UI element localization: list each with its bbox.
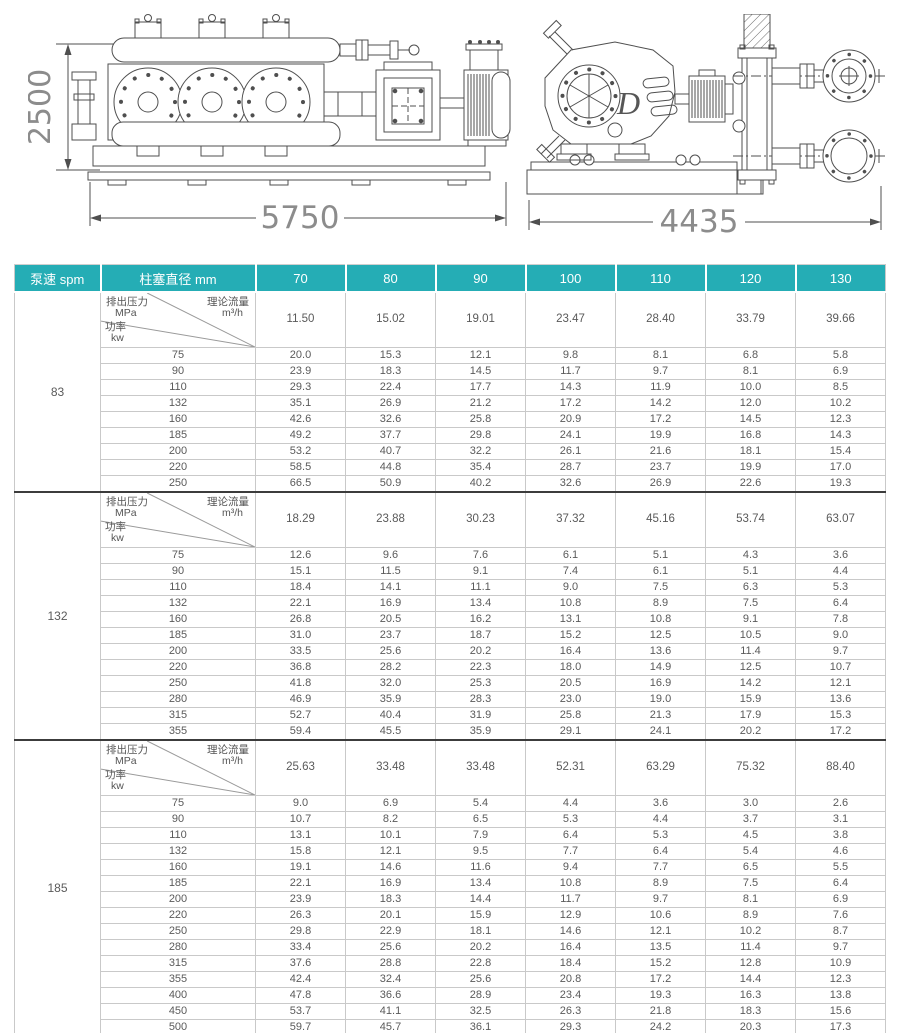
power-value: 17.2 [616, 412, 706, 428]
power-value: 32.6 [346, 412, 436, 428]
table-row: 35559.445.535.929.124.120.217.2 [15, 724, 886, 741]
power-value: 13.6 [796, 692, 886, 708]
power-value: 18.3 [346, 364, 436, 380]
power-value: 45.7 [346, 1020, 436, 1033]
power-value: 10.2 [796, 396, 886, 412]
theoretical-flow-value: 63.07 [796, 492, 886, 548]
discharge-pressure-value: 250 [101, 476, 256, 493]
power-value: 15.3 [796, 708, 886, 724]
table-row: 28033.425.620.216.413.511.49.7 [15, 940, 886, 956]
power-value: 19.1 [256, 860, 346, 876]
power-value: 40.2 [436, 476, 526, 493]
power-value: 10.8 [526, 596, 616, 612]
power-value: 11.4 [706, 940, 796, 956]
corner-legend-cell: 排出压力MPa理论流量m³/h功率kw [101, 740, 256, 796]
table-row: 50059.745.736.129.324.220.317.3 [15, 1020, 886, 1033]
power-value: 10.7 [796, 660, 886, 676]
power-value: 33.5 [256, 644, 346, 660]
power-value: 24.1 [616, 724, 706, 741]
spec-table-body: 83排出压力MPa理论流量m³/h功率kw11.5015.0219.0123.4… [15, 292, 886, 1033]
power-value: 28.3 [436, 692, 526, 708]
discharge-pressure-value: 200 [101, 444, 256, 460]
discharge-pressure-value: 75 [101, 796, 256, 812]
power-value: 9.6 [346, 548, 436, 564]
discharge-pressure-value: 185 [101, 428, 256, 444]
table-row: 11013.110.17.96.45.34.53.8 [15, 828, 886, 844]
table-row: 13215.812.19.57.76.45.44.6 [15, 844, 886, 860]
power-value: 7.6 [796, 908, 886, 924]
power-value: 9.7 [616, 892, 706, 908]
power-value: 8.5 [796, 380, 886, 396]
power-value: 7.6 [436, 548, 526, 564]
power-value: 4.3 [706, 548, 796, 564]
power-value: 18.7 [436, 628, 526, 644]
pressure-label: 排出压力 [106, 745, 148, 756]
power-value: 31.0 [256, 628, 346, 644]
power-value: 12.9 [526, 908, 616, 924]
pump-speed-value: 132 [15, 492, 101, 740]
power-value: 37.6 [256, 956, 346, 972]
power-value: 25.6 [346, 940, 436, 956]
power-value: 11.9 [616, 380, 706, 396]
power-label: 功率 [105, 522, 126, 533]
power-value: 6.9 [796, 364, 886, 380]
power-value: 6.9 [346, 796, 436, 812]
power-value: 4.4 [616, 812, 706, 828]
power-value: 5.8 [796, 348, 886, 364]
power-value: 29.3 [526, 1020, 616, 1033]
header-plunger-diameter: 柱塞直径 mm [101, 265, 256, 293]
theoretical-flow-value: 33.79 [706, 292, 796, 348]
power-value: 28.2 [346, 660, 436, 676]
power-value: 33.4 [256, 940, 346, 956]
power-value: 46.9 [256, 692, 346, 708]
power-value: 16.4 [526, 940, 616, 956]
power-value: 21.8 [616, 1004, 706, 1020]
power-value: 13.5 [616, 940, 706, 956]
table-row: 9023.918.314.511.79.78.16.9 [15, 364, 886, 380]
power-value: 26.3 [256, 908, 346, 924]
power-value: 20.1 [346, 908, 436, 924]
discharge-pressure-value: 160 [101, 860, 256, 876]
base-frame [527, 155, 763, 194]
flow-unit: m³/h [222, 508, 243, 519]
power-value: 40.4 [346, 708, 436, 724]
power-unit: kw [111, 533, 124, 544]
power-value: 20.3 [706, 1020, 796, 1033]
power-value: 36.1 [436, 1020, 526, 1033]
power-value: 20.2 [706, 724, 796, 741]
flow-unit: m³/h [222, 308, 243, 319]
power-value: 50.9 [346, 476, 436, 493]
fluid-end [108, 38, 419, 156]
power-value: 16.2 [436, 612, 526, 628]
power-value: 12.1 [616, 924, 706, 940]
power-value: 14.4 [436, 892, 526, 908]
power-value: 45.5 [346, 724, 436, 741]
power-value: 3.6 [796, 548, 886, 564]
table-row: 9015.111.59.17.46.15.14.4 [15, 564, 886, 580]
power-value: 32.6 [526, 476, 616, 493]
power-value: 36.8 [256, 660, 346, 676]
power-value: 23.0 [526, 692, 616, 708]
power-value: 9.8 [526, 348, 616, 364]
corner-legend-cell: 排出压力MPa理论流量m³/h功率kw [101, 492, 256, 548]
power-value: 12.8 [706, 956, 796, 972]
theoretical-flow-value: 23.47 [526, 292, 616, 348]
table-row: 22026.320.115.912.910.68.97.6 [15, 908, 886, 924]
valve-stacks [135, 15, 289, 39]
theoretical-flow-value: 25.63 [256, 740, 346, 796]
power-value: 9.7 [796, 940, 886, 956]
power-value: 35.9 [436, 724, 526, 741]
power-value: 29.3 [256, 380, 346, 396]
power-value: 59.7 [256, 1020, 346, 1033]
theoretical-flow-value: 19.01 [436, 292, 526, 348]
discharge-pressure-value: 315 [101, 708, 256, 724]
power-value: 22.9 [346, 924, 436, 940]
discharge-pressure-value: 250 [101, 924, 256, 940]
table-row: 9010.78.26.55.34.43.73.1 [15, 812, 886, 828]
power-unit: kw [111, 333, 124, 344]
power-value: 15.9 [706, 692, 796, 708]
pressure-unit: MPa [115, 756, 137, 767]
theoretical-flow-value: 33.48 [346, 740, 436, 796]
power-value: 19.3 [616, 988, 706, 1004]
power-value: 12.3 [796, 972, 886, 988]
power-value: 26.9 [346, 396, 436, 412]
dimension-5750: 5750 [261, 200, 340, 236]
table-row: 31537.628.822.818.415.212.810.9 [15, 956, 886, 972]
power-value: 6.1 [616, 564, 706, 580]
power-value: 44.8 [346, 460, 436, 476]
table-row: 7520.015.312.19.88.16.85.8 [15, 348, 886, 364]
power-value: 15.2 [616, 956, 706, 972]
power-value: 19.9 [616, 428, 706, 444]
header-pump-speed: 泵速 spm [15, 265, 101, 293]
power-value: 15.2 [526, 628, 616, 644]
theoretical-flow-value: 75.32 [706, 740, 796, 796]
power-value: 14.5 [706, 412, 796, 428]
power-value: 9.7 [796, 644, 886, 660]
power-value: 13.6 [616, 644, 706, 660]
power-value: 17.3 [796, 1020, 886, 1033]
power-value: 18.4 [526, 956, 616, 972]
power-value: 29.8 [436, 428, 526, 444]
power-value: 8.1 [706, 364, 796, 380]
power-value: 13.4 [436, 596, 526, 612]
power-value: 53.2 [256, 444, 346, 460]
discharge-pressure-value: 110 [101, 828, 256, 844]
power-value: 14.4 [706, 972, 796, 988]
power-value: 5.4 [706, 844, 796, 860]
power-value: 29.1 [526, 724, 616, 741]
discharge-pressure-value: 280 [101, 692, 256, 708]
section-row-83: 83排出压力MPa理论流量m³/h功率kw11.5015.0219.0123.4… [15, 292, 886, 348]
power-value: 6.4 [526, 828, 616, 844]
power-value: 9.0 [796, 628, 886, 644]
power-value: 22.1 [256, 876, 346, 892]
power-value: 8.9 [616, 596, 706, 612]
power-value: 10.8 [526, 876, 616, 892]
power-value: 10.6 [616, 908, 706, 924]
power-value: 36.6 [346, 988, 436, 1004]
power-value: 47.8 [256, 988, 346, 1004]
power-value: 26.3 [526, 1004, 616, 1020]
power-value: 16.9 [346, 596, 436, 612]
power-value: 42.4 [256, 972, 346, 988]
power-value: 6.9 [796, 892, 886, 908]
discharge-pressure-value: 220 [101, 660, 256, 676]
power-value: 32.2 [436, 444, 526, 460]
theoretical-flow-value: 52.31 [526, 740, 616, 796]
power-value: 18.4 [256, 580, 346, 596]
power-value: 53.7 [256, 1004, 346, 1020]
power-value: 20.9 [526, 412, 616, 428]
power-value: 3.8 [796, 828, 886, 844]
power-value: 7.5 [706, 596, 796, 612]
table-row: 11018.414.111.19.07.56.35.3 [15, 580, 886, 596]
power-value: 41.1 [346, 1004, 436, 1020]
power-value: 31.9 [436, 708, 526, 724]
corner-legend-cell: 排出压力MPa理论流量m³/h功率kw [101, 292, 256, 348]
discharge-pressure-value: 132 [101, 844, 256, 860]
theoretical-flow-value: 18.29 [256, 492, 346, 548]
power-value: 24.1 [526, 428, 616, 444]
power-value: 16.4 [526, 644, 616, 660]
power-value: 18.0 [526, 660, 616, 676]
pressure-label: 排出压力 [106, 497, 148, 508]
gearbox [376, 62, 464, 140]
power-value: 15.4 [796, 444, 886, 460]
table-row: 18522.116.913.410.88.97.56.4 [15, 876, 886, 892]
discharge-pressure-value: 400 [101, 988, 256, 1004]
power-value: 49.2 [256, 428, 346, 444]
power-value: 18.1 [706, 444, 796, 460]
power-value: 7.8 [796, 612, 886, 628]
power-value: 6.4 [796, 596, 886, 612]
power-value: 59.4 [256, 724, 346, 741]
power-value: 17.2 [796, 724, 886, 741]
power-value: 14.5 [436, 364, 526, 380]
power-value: 6.4 [616, 844, 706, 860]
power-value: 5.3 [616, 828, 706, 844]
power-value: 13.4 [436, 876, 526, 892]
power-value: 14.3 [526, 380, 616, 396]
table-row: 28046.935.928.323.019.015.913.6 [15, 692, 886, 708]
power-value: 15.6 [796, 1004, 886, 1020]
power-value: 14.2 [706, 676, 796, 692]
theoretical-flow-value: 23.88 [346, 492, 436, 548]
power-value: 22.8 [436, 956, 526, 972]
power-value: 8.1 [706, 892, 796, 908]
power-value: 9.0 [526, 580, 616, 596]
power-value: 20.8 [526, 972, 616, 988]
power-label: 功率 [105, 770, 126, 781]
header-diameter-110: 110 [616, 265, 706, 293]
power-label: 功率 [105, 322, 126, 333]
table-row: 25041.832.025.320.516.914.212.1 [15, 676, 886, 692]
power-value: 5.3 [526, 812, 616, 828]
motor [464, 41, 510, 147]
power-value: 7.4 [526, 564, 616, 580]
discharge-pressure-value: 450 [101, 1004, 256, 1020]
header-diameter-130: 130 [796, 265, 886, 293]
power-value: 15.3 [346, 348, 436, 364]
table-row: 759.06.95.44.43.63.02.6 [15, 796, 886, 812]
power-value: 11.7 [526, 892, 616, 908]
table-row: 45053.741.132.526.321.818.315.6 [15, 1004, 886, 1020]
power-value: 8.2 [346, 812, 436, 828]
power-value: 52.7 [256, 708, 346, 724]
power-value: 32.4 [346, 972, 436, 988]
power-value: 11.1 [436, 580, 526, 596]
power-value: 4.5 [706, 828, 796, 844]
power-value: 14.3 [796, 428, 886, 444]
theoretical-flow-value: 63.29 [616, 740, 706, 796]
power-value: 12.1 [796, 676, 886, 692]
power-value: 17.7 [436, 380, 526, 396]
discharge-pressure-value: 280 [101, 940, 256, 956]
power-value: 7.7 [616, 860, 706, 876]
power-value: 25.6 [346, 644, 436, 660]
theoretical-flow-value: 39.66 [796, 292, 886, 348]
power-value: 58.5 [256, 460, 346, 476]
discharge-pressure-value: 110 [101, 380, 256, 396]
power-value: 35.9 [346, 692, 436, 708]
power-value: 26.1 [526, 444, 616, 460]
discharge-pressure-value: 220 [101, 908, 256, 924]
discharge-pressure-value: 500 [101, 1020, 256, 1033]
power-value: 23.7 [346, 628, 436, 644]
vertical-manifold [733, 45, 776, 184]
power-value: 6.4 [796, 876, 886, 892]
header-diameter-80: 80 [346, 265, 436, 293]
power-value: 11.7 [526, 364, 616, 380]
power-value: 13.8 [796, 988, 886, 1004]
power-value: 20.0 [256, 348, 346, 364]
flow-label: 理论流量 [207, 297, 249, 308]
power-value: 8.7 [796, 924, 886, 940]
power-value: 2.6 [796, 796, 886, 812]
power-value: 4.6 [796, 844, 886, 860]
discharge-pressure-value: 185 [101, 628, 256, 644]
discharge-pressure-value: 200 [101, 644, 256, 660]
discharge-pressure-value: 355 [101, 972, 256, 988]
power-value: 40.7 [346, 444, 436, 460]
power-value: 15.9 [436, 908, 526, 924]
discharge-pressure-value: 220 [101, 460, 256, 476]
power-value: 26.8 [256, 612, 346, 628]
power-value: 12.5 [616, 628, 706, 644]
power-value: 29.8 [256, 924, 346, 940]
pump-end-view-drawing: D [523, 14, 893, 254]
power-value: 13.1 [256, 828, 346, 844]
header-diameter-100: 100 [526, 265, 616, 293]
theoretical-flow-value: 88.40 [796, 740, 886, 796]
power-value: 9.7 [616, 364, 706, 380]
power-value: 7.5 [706, 876, 796, 892]
power-value: 6.1 [526, 548, 616, 564]
power-value: 12.1 [346, 844, 436, 860]
power-value: 23.4 [526, 988, 616, 1004]
power-value: 18.3 [706, 1004, 796, 1020]
power-value: 22.3 [436, 660, 526, 676]
discharge-pressure-value: 185 [101, 876, 256, 892]
theoretical-flow-value: 30.23 [436, 492, 526, 548]
discharge-pressure-value: 110 [101, 580, 256, 596]
power-value: 9.5 [436, 844, 526, 860]
power-value: 10.9 [796, 956, 886, 972]
table-row: 22058.544.835.428.723.719.917.0 [15, 460, 886, 476]
table-row: 16019.114.611.69.47.76.55.5 [15, 860, 886, 876]
power-unit: kw [111, 781, 124, 792]
table-row: 40047.836.628.923.419.316.313.8 [15, 988, 886, 1004]
power-value: 3.6 [616, 796, 706, 812]
discharge-pressure-value: 160 [101, 412, 256, 428]
power-value: 20.2 [436, 644, 526, 660]
flow-unit: m³/h [222, 756, 243, 767]
spec-table-header: 泵速 spm柱塞直径 mm708090100110120130 [15, 265, 886, 293]
discharge-pressure-value: 250 [101, 676, 256, 692]
theoretical-flow-value: 15.02 [346, 292, 436, 348]
table-row: 16042.632.625.820.917.214.512.3 [15, 412, 886, 428]
theoretical-flow-value: 45.16 [616, 492, 706, 548]
power-value: 10.2 [706, 924, 796, 940]
power-value: 10.7 [256, 812, 346, 828]
discharge-pressure-value: 90 [101, 812, 256, 828]
power-value: 4.4 [796, 564, 886, 580]
power-value: 16.9 [346, 876, 436, 892]
power-value: 35.1 [256, 396, 346, 412]
pressure-label: 排出压力 [106, 297, 148, 308]
power-value: 16.3 [706, 988, 796, 1004]
pump-speed-value: 185 [15, 740, 101, 1033]
power-value: 19.9 [706, 460, 796, 476]
power-value: 17.2 [616, 972, 706, 988]
power-value: 41.8 [256, 676, 346, 692]
power-value: 4.4 [526, 796, 616, 812]
table-row: 25029.822.918.114.612.110.28.7 [15, 924, 886, 940]
power-value: 12.5 [706, 660, 796, 676]
power-value: 28.8 [346, 956, 436, 972]
end-motor [675, 70, 733, 122]
theoretical-flow-value: 53.74 [706, 492, 796, 548]
power-value: 14.2 [616, 396, 706, 412]
power-value: 37.7 [346, 428, 436, 444]
discharge-pressure-value: 160 [101, 612, 256, 628]
power-value: 9.4 [526, 860, 616, 876]
discharge-pressure-value: 200 [101, 892, 256, 908]
table-row: 13235.126.921.217.214.212.010.2 [15, 396, 886, 412]
power-value: 3.1 [796, 812, 886, 828]
power-value: 11.5 [346, 564, 436, 580]
power-value: 18.1 [436, 924, 526, 940]
power-value: 9.1 [706, 612, 796, 628]
power-value: 13.1 [526, 612, 616, 628]
dimension-4435: 4435 [660, 204, 739, 240]
table-row: 7512.69.67.66.15.14.33.6 [15, 548, 886, 564]
power-value: 10.1 [346, 828, 436, 844]
power-value: 5.1 [706, 564, 796, 580]
power-value: 20.2 [436, 940, 526, 956]
power-value: 6.5 [706, 860, 796, 876]
spacer [324, 92, 376, 116]
height-dimension [56, 44, 118, 170]
power-value: 16.9 [616, 676, 706, 692]
power-value: 12.6 [256, 548, 346, 564]
power-value: 18.3 [346, 892, 436, 908]
